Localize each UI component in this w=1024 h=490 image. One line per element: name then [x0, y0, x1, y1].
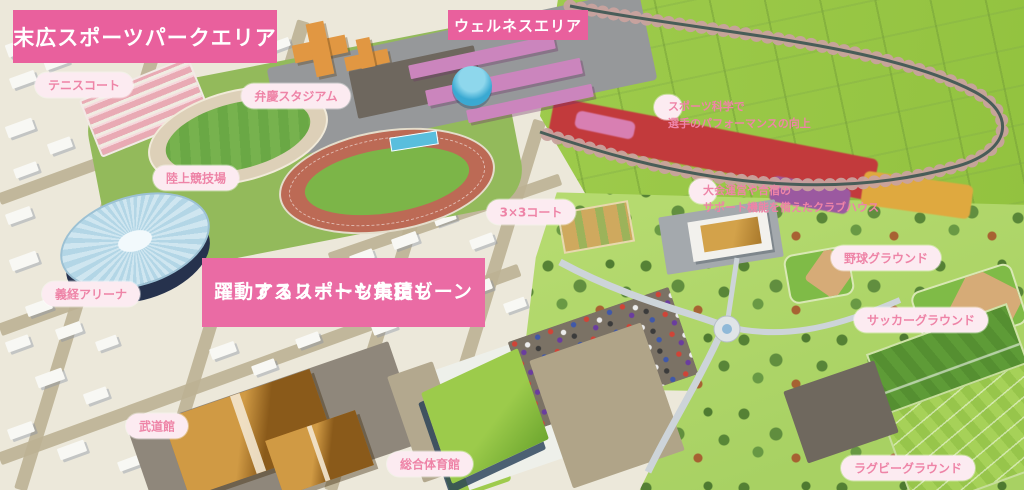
- label-3x3-court: 3×3コート: [487, 200, 576, 225]
- sports-science-line1: スポーツ科学で: [668, 99, 745, 116]
- building-block: [9, 70, 37, 89]
- building-block: [5, 334, 31, 353]
- building-block: [469, 232, 495, 250]
- building-block: [5, 206, 33, 225]
- building-block: [13, 161, 39, 179]
- clubhouse-line1: 大会運営や合宿の: [703, 183, 791, 200]
- building-block: [9, 251, 39, 272]
- label-budokan: 武道館: [126, 414, 188, 439]
- label-yoshitsune-arena: 義経アリーナ: [42, 282, 140, 307]
- label-soccer-ground: サッカーグラウンド: [854, 308, 988, 333]
- zone-line2: 躍動するスポーツ集積ゾーン: [214, 278, 473, 307]
- label-benkei-stadium: 弁慶スタジアム: [241, 84, 350, 109]
- gas-tank-building: [452, 66, 492, 106]
- page-title: 末広スポーツパークエリア: [13, 10, 277, 63]
- building-block: [5, 118, 35, 139]
- label-baseball-ground: 野球グラウンド: [831, 246, 941, 271]
- sports-park-map: 末広スポーツパークエリア ウェルネスエリア アスリートも市民も 躍動するスポーツ…: [0, 0, 1024, 490]
- building-block: [209, 341, 237, 360]
- label-sports-science: スポーツ科学で 選手のパフォーマンスの向上: [654, 95, 682, 120]
- clubhouse-line2: サポート機能を備えたクラブハウス: [703, 199, 879, 216]
- building-block: [83, 386, 109, 405]
- label-general-gymnasium: 総合体育館: [387, 452, 473, 477]
- building-block: [95, 335, 119, 352]
- building-block: [503, 297, 527, 314]
- building-block: [47, 136, 73, 155]
- zone-description-box: アスリートも市民も 躍動するスポーツ集積ゾーン: [202, 258, 485, 327]
- label-tennis-court: テニスコート: [35, 73, 133, 98]
- label-athletics-field: 陸上競技場: [153, 166, 239, 191]
- wellness-area-label: ウェルネスエリア: [448, 10, 588, 40]
- label-clubhouse: 大会運営や合宿の サポート機能を備えたクラブハウス: [689, 179, 717, 204]
- sports-science-line2: 選手のパフォーマンスの向上: [668, 115, 811, 132]
- label-rugby-ground: ラグビーグラウンド: [841, 456, 975, 481]
